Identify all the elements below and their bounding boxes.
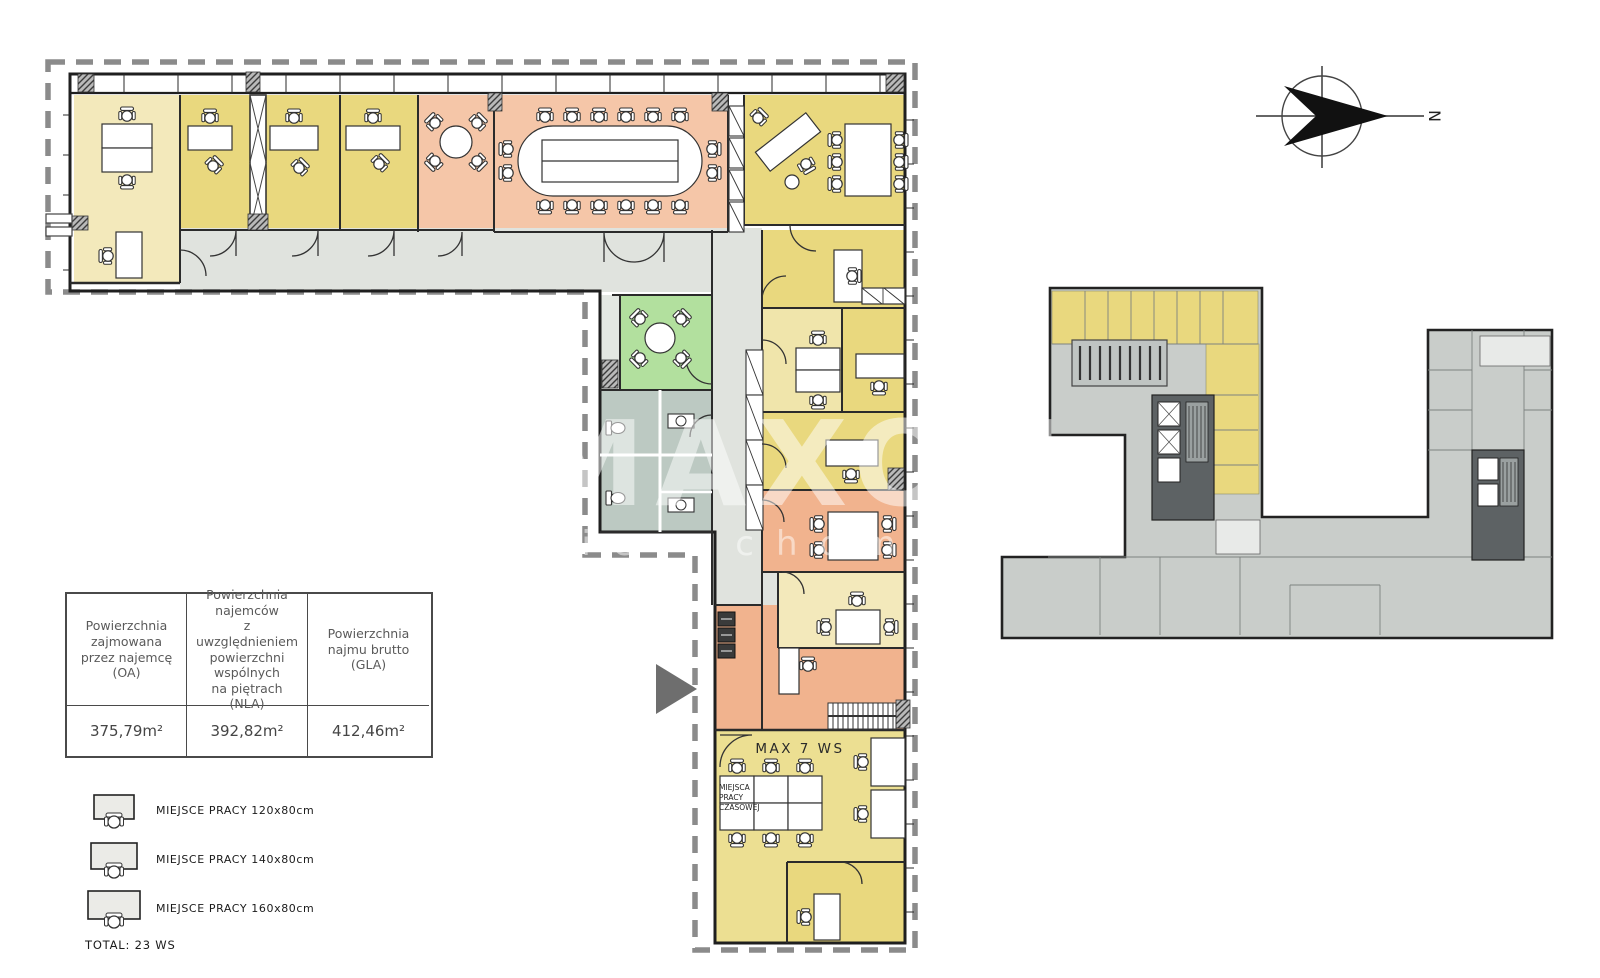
corridor-top bbox=[180, 228, 712, 292]
watermark: MAXON nieruchomości bbox=[528, 395, 1073, 564]
legend: MIEJSCE PRACY 120x80cm MIEJSCE PRACY 140… bbox=[84, 786, 314, 933]
conference-table bbox=[518, 126, 702, 196]
desk-workstation-140-icon bbox=[84, 838, 148, 882]
storage-column bbox=[729, 106, 744, 232]
legend-total: TOTAL: 23 WS bbox=[85, 938, 176, 952]
table-value-gla: 412,46m² bbox=[308, 706, 429, 756]
compass: N bbox=[1256, 66, 1444, 168]
area-summary-table: Powierzchnia zajmowana przez najemcę (OA… bbox=[65, 592, 433, 758]
room-inner-office bbox=[787, 862, 905, 943]
max-workstations-label: MAX 7 WS bbox=[755, 741, 844, 757]
overview-core-left bbox=[1152, 395, 1214, 520]
shelf bbox=[862, 288, 905, 304]
watermark-line1: MAXON bbox=[528, 395, 1073, 533]
kitchen-table bbox=[645, 323, 675, 353]
entrance-arrow bbox=[656, 664, 697, 714]
floor-plan-page: MAX 7 WS MIEJSCA PRACY CZASOWEJ bbox=[0, 0, 1600, 978]
table-header-oa: Powierzchnia zajmowana przez najemcę (OA… bbox=[67, 594, 187, 706]
north-label: N bbox=[1425, 110, 1444, 122]
legend-item-desk-120: MIEJSCE PRACY 120x80cm bbox=[84, 786, 314, 835]
overview-core-right bbox=[1472, 450, 1524, 560]
svg-text:PRACY: PRACY bbox=[719, 793, 744, 802]
watermark-line2: nieruchomości bbox=[538, 524, 1072, 564]
svg-text:CZASOWEJ: CZASOWEJ bbox=[719, 803, 760, 812]
shaft-x-brace bbox=[248, 95, 268, 230]
lockers bbox=[718, 612, 735, 658]
desk-workstation-120-icon bbox=[84, 789, 148, 833]
svg-text:MIEJSCA: MIEJSCA bbox=[719, 783, 751, 792]
stairs bbox=[828, 703, 896, 729]
desk-workstation-160-icon bbox=[84, 887, 148, 931]
table-value-oa: 375,79m² bbox=[67, 706, 187, 756]
table-header-gla: Powierzchnia najmu brutto (GLA) bbox=[308, 594, 429, 706]
table-header-nla: Powierzchnia najemców z uwzględnieniem p… bbox=[187, 594, 308, 706]
round-table bbox=[440, 126, 472, 158]
legend-label: MIEJSCE PRACY 120x80cm bbox=[156, 804, 314, 817]
overview-hall bbox=[1072, 340, 1167, 386]
legend-label: MIEJSCE PRACY 160x80cm bbox=[156, 902, 314, 915]
overview-key-plan bbox=[1002, 288, 1552, 638]
legend-item-desk-160: MIEJSCE PRACY 160x80cm bbox=[84, 884, 314, 933]
legend-label: MIEJSCE PRACY 140x80cm bbox=[156, 853, 314, 866]
legend-item-desk-140: MIEJSCE PRACY 140x80cm bbox=[84, 835, 314, 884]
table-value-nla: 392,82m² bbox=[187, 706, 308, 756]
